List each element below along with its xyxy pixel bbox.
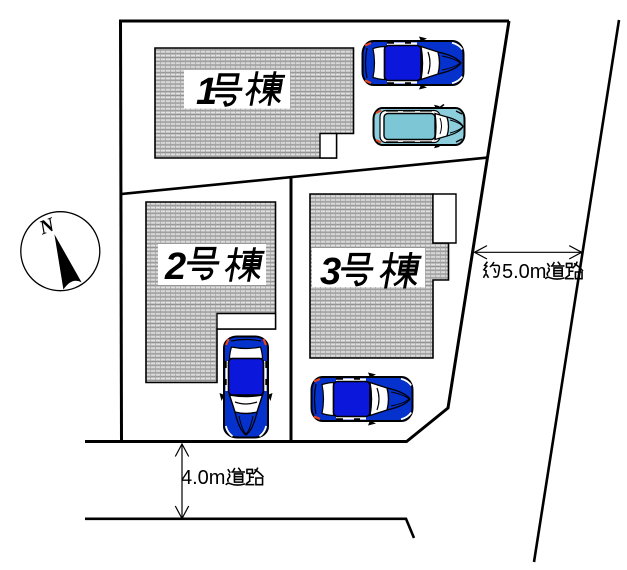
svg-text:5.0m: 5.0m (502, 261, 546, 283)
svg-text:3: 3 (320, 251, 341, 293)
svg-text:4.0m: 4.0m (181, 467, 225, 489)
svg-text:2: 2 (164, 246, 186, 288)
svg-text:1: 1 (196, 71, 217, 113)
